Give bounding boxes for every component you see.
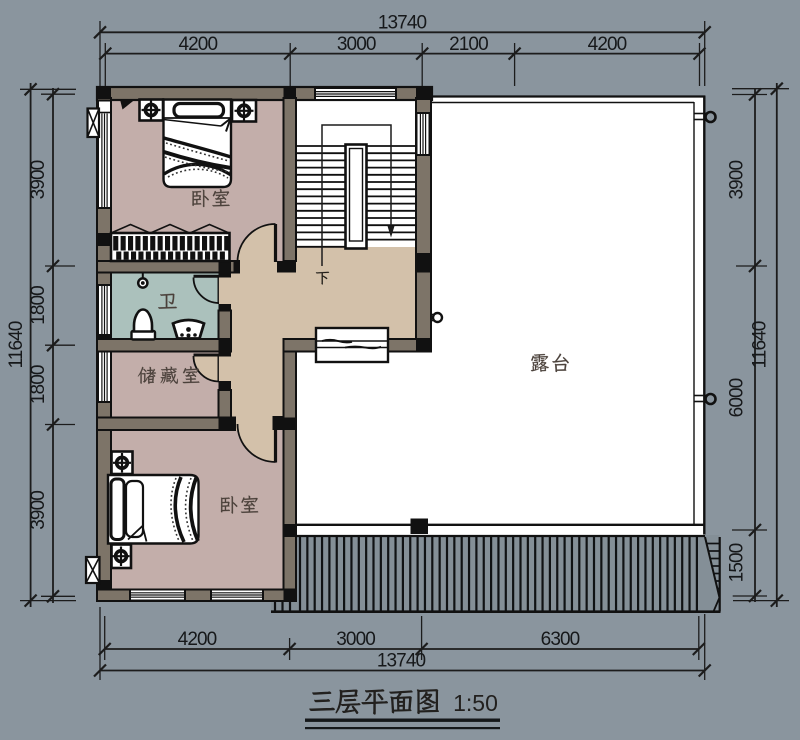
svg-text:11640: 11640	[750, 321, 771, 368]
svg-text:1500: 1500	[727, 543, 748, 582]
svg-text:3900: 3900	[28, 491, 49, 530]
svg-text:1:50: 1:50	[453, 690, 498, 716]
svg-text:4200: 4200	[178, 34, 217, 55]
svg-text:2100: 2100	[449, 34, 488, 55]
svg-text:13740: 13740	[378, 13, 427, 34]
svg-text:6300: 6300	[541, 629, 580, 650]
svg-text:11640: 11640	[6, 321, 27, 368]
svg-text:3000: 3000	[336, 629, 375, 650]
svg-text:1800: 1800	[28, 365, 49, 404]
svg-text:1800: 1800	[28, 286, 49, 325]
svg-text:4200: 4200	[178, 629, 217, 650]
svg-text:3900: 3900	[28, 160, 49, 199]
svg-text:13740: 13740	[377, 651, 426, 672]
svg-text:6000: 6000	[727, 378, 748, 417]
svg-text:3900: 3900	[727, 161, 748, 200]
svg-text:4200: 4200	[588, 34, 627, 55]
svg-text:3000: 3000	[337, 34, 376, 55]
